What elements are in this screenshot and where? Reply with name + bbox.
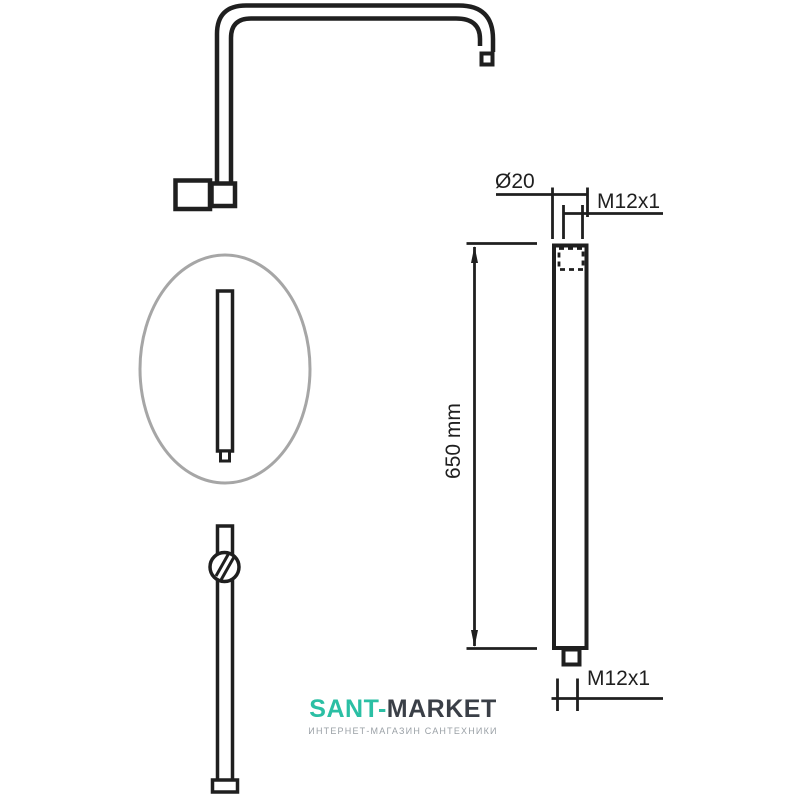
dim-label-length: 650 mm: [441, 381, 465, 501]
dim-label-diameter-top: Ø20: [495, 171, 535, 192]
wall-mount-block-small: [212, 184, 236, 207]
shower-arm-inner-line: [231, 19, 480, 185]
store-logo: SANT-MARKET ИНТЕРНЕТ-МАГАЗИН САНТЕХНИКИ: [303, 697, 503, 736]
wall-mount-block-large: [176, 181, 211, 210]
dim-label-thread-top: M12x1: [597, 191, 660, 212]
line-art: [0, 0, 800, 800]
shower-arm-figure: [176, 6, 494, 210]
riser-pipe-drawing: [554, 246, 587, 665]
dim-length-arrow-top: [471, 246, 478, 263]
riser-pipe-body: [554, 246, 587, 649]
product-technical-drawing: Ø20 M12x1 650 mm M12x1 SANT-MARKET ИНТЕР…: [0, 0, 800, 800]
store-logo-tagline: ИНТЕРНЕТ-МАГАЗИН САНТЕХНИКИ: [303, 726, 503, 736]
dim-label-thread-bottom: M12x1: [587, 668, 650, 689]
riser-pipe-bottom-tip: [564, 650, 580, 665]
dim-length-arrow-bottom: [471, 630, 478, 647]
detail-pipe-body: [218, 291, 233, 451]
store-logo-brand-secondary: MARKET: [387, 695, 497, 723]
store-logo-brand-primary: SANT-: [309, 695, 387, 723]
shower-arm-outer-line: [217, 6, 493, 185]
slide-rail-foot: [213, 780, 238, 792]
slider-knob: [210, 553, 239, 582]
slide-rail-figure: [210, 526, 239, 792]
store-logo-brand: SANT-MARKET: [303, 697, 503, 722]
shower-arm-nozzle: [482, 54, 493, 65]
detail-ellipse-figure: [140, 255, 310, 483]
detail-pipe-tip: [221, 451, 230, 461]
